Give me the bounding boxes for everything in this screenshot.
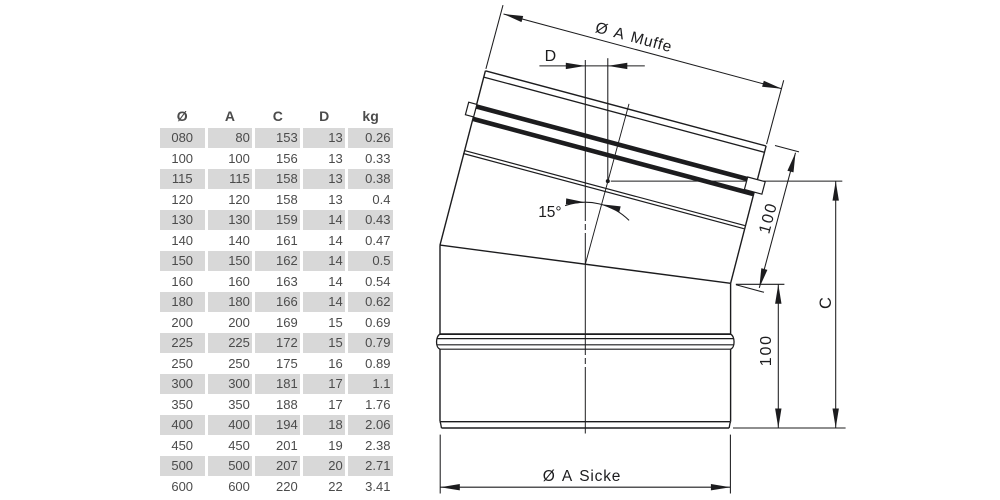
- svg-text:100: 100: [758, 334, 775, 366]
- svg-text:D: D: [545, 48, 557, 65]
- svg-text:Ø A Sicke: Ø A Sicke: [543, 468, 621, 485]
- svg-text:15°: 15°: [538, 204, 561, 221]
- svg-text:C: C: [817, 297, 835, 309]
